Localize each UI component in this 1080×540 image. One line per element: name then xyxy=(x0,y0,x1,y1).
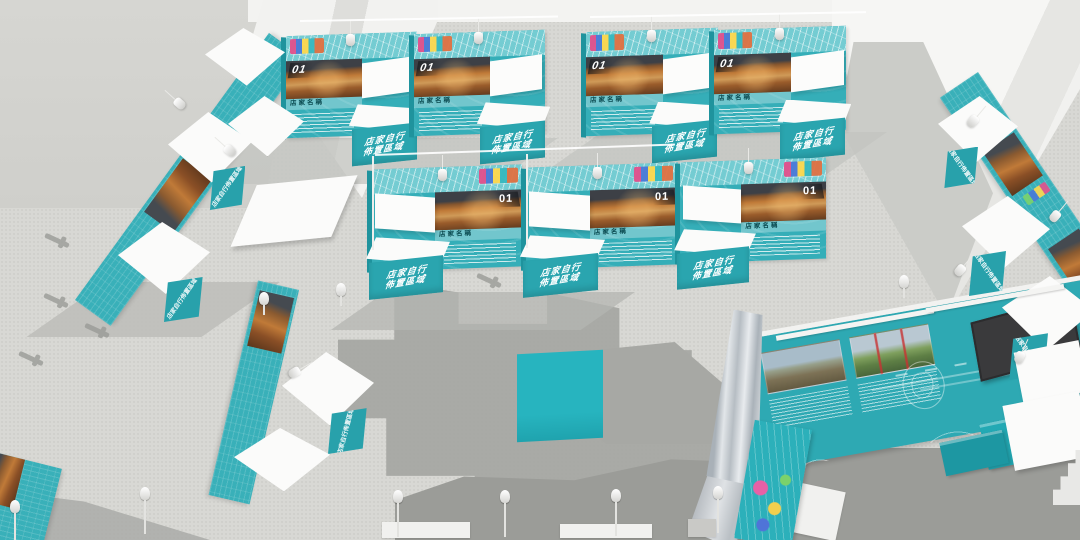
description-text-lines xyxy=(444,242,516,264)
exhibition-hall-3d-render: 01 店家名稱 店家自行佈置區域 01 店家名稱 店家自行佈置區域 xyxy=(0,0,1080,540)
lamp-head xyxy=(438,169,447,181)
event-logo xyxy=(590,34,624,51)
counter-label-line1: 店家自行 xyxy=(338,430,350,455)
side-counter: 店家自行佈置區域 xyxy=(118,222,210,322)
bottom-pillar xyxy=(688,519,716,537)
frame-pole xyxy=(526,154,528,248)
counter-top xyxy=(205,28,285,86)
counter-label: 店家自行佈置區域 xyxy=(539,261,582,289)
lamp-pole xyxy=(615,502,617,536)
spotlight-icon xyxy=(140,487,150,534)
exhibitor-booth: 01 店家名稱 店家自行佈置區域 xyxy=(526,153,678,295)
spotlight-icon xyxy=(899,275,909,298)
spotlight-icon xyxy=(647,16,656,42)
spotlight-icon xyxy=(775,14,784,40)
lamp-rod xyxy=(748,148,749,162)
booth-number: 01 xyxy=(415,60,441,76)
landscape-photo xyxy=(761,339,847,394)
lamp-head xyxy=(500,490,510,503)
lamp-head xyxy=(140,487,150,500)
blank-white-panel xyxy=(529,191,590,230)
counter-label: 店家自行佈置區域 xyxy=(167,278,200,322)
counter-front: 店家自行佈置區域 xyxy=(523,253,598,298)
lamp-pole xyxy=(397,503,399,537)
spotlight-icon xyxy=(611,489,621,536)
event-logo xyxy=(479,168,518,185)
lamp-rod xyxy=(442,155,443,169)
counter-front: 店家自行佈置區域 xyxy=(164,277,203,322)
spotlight-icon xyxy=(346,20,355,46)
side-counter xyxy=(205,28,285,108)
booth-number: 01 xyxy=(587,58,613,74)
side-counter xyxy=(234,428,330,516)
spotlight-icon xyxy=(438,155,447,181)
counter-label: 店家自行佈置區域 xyxy=(945,145,978,189)
exhibitor-booth: 01 店家名稱 店家自行佈置區域 xyxy=(414,20,545,162)
counter-label: 店家自行佈置區域 xyxy=(338,407,357,455)
counter-front: 店家自行佈置區域 xyxy=(369,255,443,300)
lamp-shadow xyxy=(44,233,70,249)
description-text-lines xyxy=(591,109,654,131)
exhibitor-booth: 01 店家名稱 店家自行佈置區域 xyxy=(286,22,417,164)
booth-number: 01 xyxy=(494,191,520,207)
bottom-counter-top xyxy=(560,524,652,538)
description-text-lines xyxy=(750,234,820,256)
booth-counter: 店家自行佈置區域 xyxy=(674,229,756,288)
blank-white-panel xyxy=(375,193,435,232)
lamp-head xyxy=(744,162,753,174)
lamp-head xyxy=(899,275,909,288)
lamp-pole xyxy=(504,503,506,537)
lamp-head xyxy=(10,500,20,513)
lamp-rod xyxy=(478,18,479,32)
food-photo xyxy=(247,290,293,353)
booth-number: 01 xyxy=(287,62,313,78)
counter-label: 店家自行佈置區域 xyxy=(385,263,428,291)
lamp-pole xyxy=(14,513,16,540)
exhibitor-booth: 01 店家名稱 店家自行佈置區域 xyxy=(680,148,826,288)
lamp-head xyxy=(346,34,355,46)
counter-label-line1: 店家自行 xyxy=(167,297,185,321)
counter-label-line1: 店家自行 xyxy=(945,145,963,169)
counter-label: 店家自行佈置區域 xyxy=(692,255,735,283)
lamp-head xyxy=(393,490,403,503)
lamp-head xyxy=(611,489,621,502)
spotlight-icon xyxy=(393,490,403,537)
spotlight-icon xyxy=(336,283,346,306)
counter-label-line1: 店家自行 xyxy=(211,186,229,210)
lamp-shadow xyxy=(43,293,69,309)
event-logo xyxy=(718,32,752,49)
counter-front: 店家自行佈置區域 xyxy=(677,247,749,291)
booth-counter: 店家自行佈置區域 xyxy=(520,235,605,295)
frame-pole xyxy=(372,156,374,250)
spotlight-icon xyxy=(744,148,753,174)
lamp-head xyxy=(593,167,602,179)
lamp-head xyxy=(775,28,784,40)
exhibitor-booth: 01 店家名稱 店家自行佈置區域 xyxy=(714,16,846,160)
lamp-head xyxy=(259,292,269,305)
event-logo xyxy=(784,161,822,177)
lamp-head xyxy=(713,486,723,499)
booth-number: 01 xyxy=(715,56,741,72)
event-logo xyxy=(634,166,674,183)
counter-label-line2: 佈置區域 xyxy=(344,407,356,432)
blank-white-panel xyxy=(683,186,741,224)
counter-front: 店家自行佈置區域 xyxy=(328,408,367,454)
event-logo xyxy=(418,36,452,53)
lamp-rod xyxy=(779,14,780,28)
spotlight-icon xyxy=(10,500,20,540)
booth-counter: 店家自行佈置區域 xyxy=(366,237,450,297)
lamp-pole xyxy=(903,288,905,298)
event-logo xyxy=(290,38,324,55)
lamp-rod xyxy=(651,16,652,30)
booth-number: 01 xyxy=(799,184,825,200)
exhibitor-booth: 01 店家名稱 店家自行佈置區域 xyxy=(372,155,522,297)
blank-white-panel xyxy=(663,52,716,95)
display-pedestal xyxy=(517,350,603,443)
lamp-pole xyxy=(340,296,342,306)
counter-label-line2: 佈置區域 xyxy=(181,278,199,302)
spotlight-icon xyxy=(259,292,269,315)
counter-label-line2: 佈置區域 xyxy=(959,165,977,189)
lamp-head xyxy=(336,283,346,296)
counter-label-line1: 店家自行 xyxy=(972,252,990,276)
counter-front: 店家自行佈置區域 xyxy=(944,147,978,188)
description-text-lines xyxy=(419,110,482,132)
description-text-lines xyxy=(599,240,672,262)
blank-white-panel xyxy=(791,50,844,93)
lamp-rod xyxy=(1022,339,1029,352)
lamp-head xyxy=(474,32,483,44)
white-counter-block xyxy=(1002,391,1080,471)
spotlight-icon xyxy=(500,490,510,537)
lamp-rod xyxy=(350,20,351,34)
blank-white-panel xyxy=(490,54,542,96)
lamp-shadow xyxy=(18,351,44,367)
lamp-head xyxy=(647,30,656,42)
description-text-lines xyxy=(719,107,782,129)
counter-top xyxy=(234,428,330,491)
lamp-pole xyxy=(717,499,719,533)
spotlight-icon xyxy=(713,486,723,533)
exhibitor-booth: 01 店家名稱 店家自行佈置區域 xyxy=(586,18,718,162)
booth-number: 01 xyxy=(650,189,676,205)
blank-white-panel xyxy=(362,56,414,98)
side-counter xyxy=(228,96,304,180)
spotlight-icon xyxy=(474,18,483,44)
spotlight-icon xyxy=(593,153,602,179)
lamp-rod xyxy=(597,153,598,167)
lamp-pole xyxy=(263,305,265,315)
lamp-pole xyxy=(144,500,146,534)
